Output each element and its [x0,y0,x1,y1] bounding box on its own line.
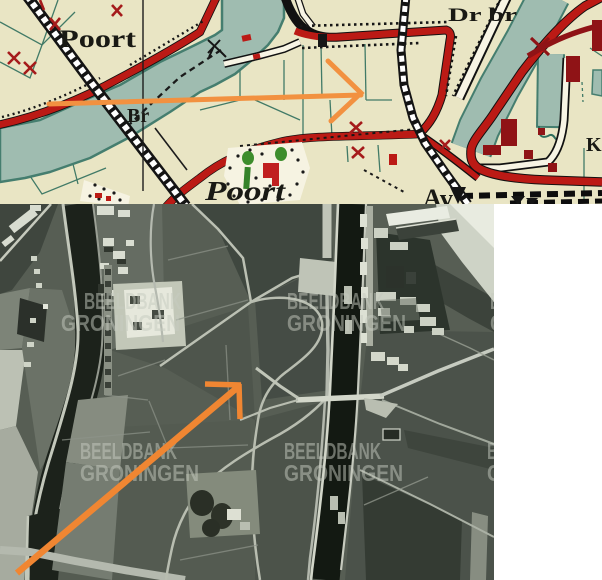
svg-text:Br: Br [127,105,149,127]
svg-text:GRONINGEN: GRONINGEN [284,460,403,486]
svg-text:Poort: Poort [59,26,137,53]
svg-text:GRONINGEN: GRONINGEN [61,310,180,336]
svg-text:Poort: Poort [204,176,287,206]
svg-text:GRONINGEN: GRONINGEN [287,310,406,336]
svg-text:Dr br: Dr br [448,5,518,26]
svg-text:K: K [586,134,602,156]
